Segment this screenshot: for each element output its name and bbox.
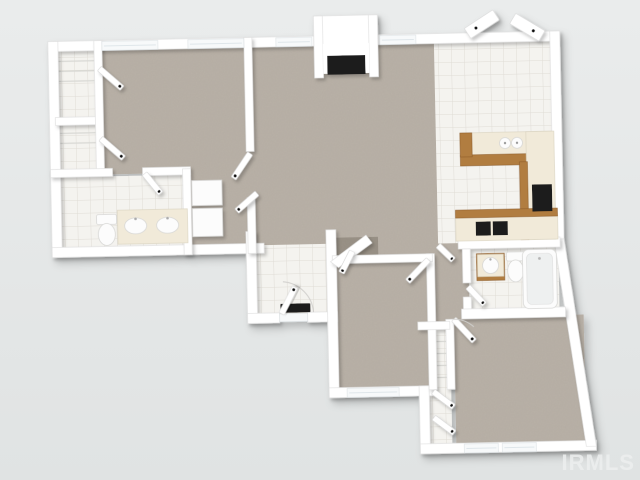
window — [464, 443, 498, 453]
window — [102, 40, 158, 50]
wall-suite-left — [50, 168, 112, 177]
fireplace-side-left — [313, 16, 323, 78]
wall-bedroom3-west — [446, 319, 455, 389]
wall-oven — [532, 184, 553, 211]
floor-plan — [47, 8, 596, 462]
floor-plan-render — [0, 0, 640, 480]
linen-shelves — [192, 180, 223, 237]
floor-plan-svg — [0, 0, 640, 480]
wall-bath2-south — [461, 307, 565, 319]
window — [276, 37, 312, 47]
wall-hall-bath2-upper — [462, 249, 471, 283]
fireplace-side-right — [368, 15, 378, 77]
firebox — [327, 55, 365, 75]
bathtub — [522, 249, 557, 309]
window — [502, 443, 536, 453]
wall-entry-south-left — [248, 313, 280, 324]
kitchen-cabinet-corner — [460, 133, 473, 157]
window — [188, 39, 244, 49]
irmls-watermark: IRMLS — [562, 450, 635, 476]
wall-closet3-north — [418, 321, 450, 330]
fireplace — [313, 15, 378, 78]
vanity — [476, 253, 505, 281]
wall-closet-divider — [55, 117, 101, 126]
wall-living-west-lower — [247, 197, 256, 253]
window — [380, 35, 416, 45]
window — [347, 387, 399, 397]
